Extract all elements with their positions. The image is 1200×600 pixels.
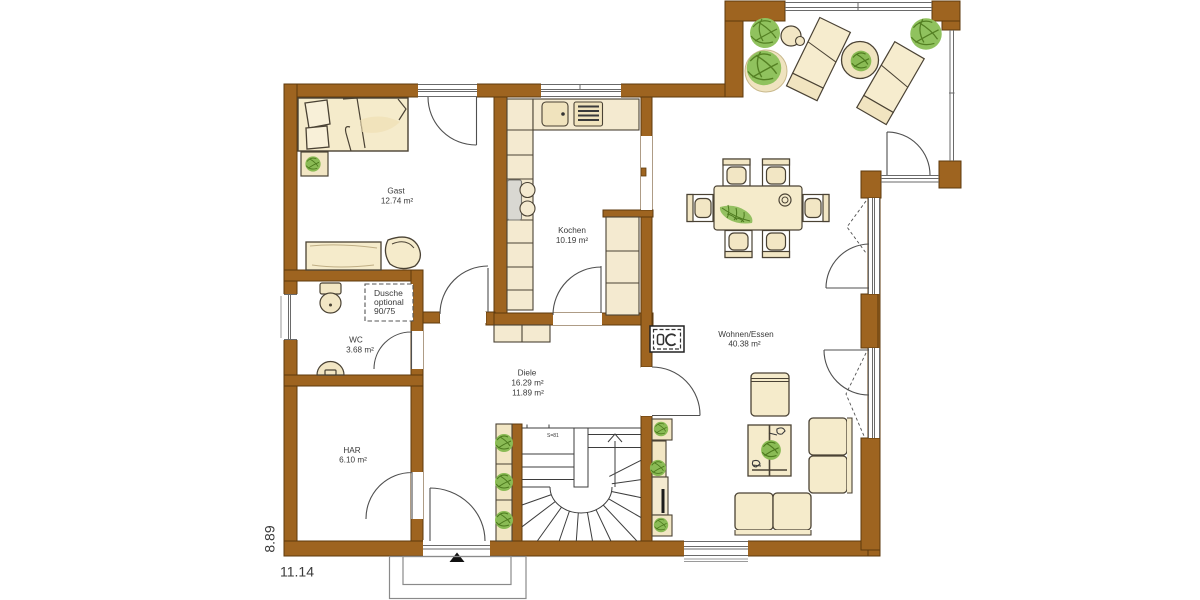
svg-text:16.29 m²: 16.29 m²: [511, 379, 544, 388]
svg-text:Kochen: Kochen: [558, 226, 586, 235]
svg-text:WC: WC: [349, 336, 363, 345]
svg-text:40.38 m²: 40.38 m²: [728, 340, 761, 349]
svg-text:8.89: 8.89: [262, 525, 278, 552]
svg-text:10.19 m²: 10.19 m²: [556, 236, 589, 245]
svg-text:90/75: 90/75: [374, 306, 396, 316]
svg-text:HAR: HAR: [343, 446, 360, 455]
svg-text:6.10 m²: 6.10 m²: [339, 456, 367, 465]
svg-text:Diele: Diele: [518, 369, 537, 378]
svg-text:Gast: Gast: [387, 187, 405, 196]
svg-text:11.89 m²: 11.89 m²: [512, 389, 544, 398]
svg-text:3.68 m²: 3.68 m²: [346, 346, 374, 355]
svg-text:Wohnen/Essen: Wohnen/Essen: [718, 330, 774, 339]
svg-text:S=81: S=81: [547, 433, 559, 439]
svg-text:11.14: 11.14: [280, 564, 314, 580]
svg-text:12.74 m²: 12.74 m²: [381, 197, 414, 206]
